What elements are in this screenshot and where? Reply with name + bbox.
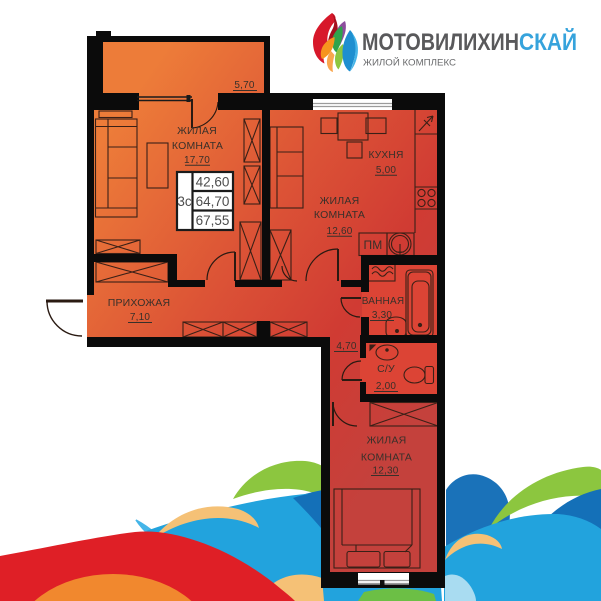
svg-text:КОМНАТА: КОМНАТА [361,452,412,464]
svg-text:ЖИЛАЯ: ЖИЛАЯ [367,435,407,447]
svg-text:64,70: 64,70 [196,194,230,209]
svg-text:4,70: 4,70 [336,341,357,352]
svg-text:ПМ: ПМ [363,238,382,252]
svg-text:С/У: С/У [377,363,395,375]
svg-text:5,00: 5,00 [376,165,397,176]
svg-text:КУХНЯ: КУХНЯ [368,150,403,161]
svg-text:42,60: 42,60 [196,175,230,190]
svg-text:12,30: 12,30 [372,466,398,477]
svg-text:17,70: 17,70 [184,155,210,166]
svg-text:5,70: 5,70 [234,80,255,91]
svg-text:СКАЙ: СКАЙ [519,28,577,56]
svg-text:67,55: 67,55 [196,213,230,228]
svg-text:3,30: 3,30 [372,310,393,321]
svg-text:КОМНАТА: КОМНАТА [314,209,365,221]
svg-text:ЖИЛАЯ: ЖИЛАЯ [177,125,217,137]
svg-text:7,10: 7,10 [130,312,151,323]
svg-text:ПРИХОЖАЯ: ПРИХОЖАЯ [108,297,171,309]
svg-text:ВАННАЯ: ВАННАЯ [362,296,405,307]
svg-text:МОТОВИЛИХИН: МОТОВИЛИХИН [362,29,519,56]
svg-text:ЖИЛОЙ КОМПЛЕКС: ЖИЛОЙ КОМПЛЕКС [363,57,456,69]
svg-text:2,00: 2,00 [376,381,397,392]
svg-text:12,60: 12,60 [326,226,352,237]
svg-text:ЖИЛАЯ: ЖИЛАЯ [320,195,360,207]
svg-text:3с: 3с [177,194,192,209]
svg-text:КОМНАТА: КОМНАТА [172,140,223,152]
